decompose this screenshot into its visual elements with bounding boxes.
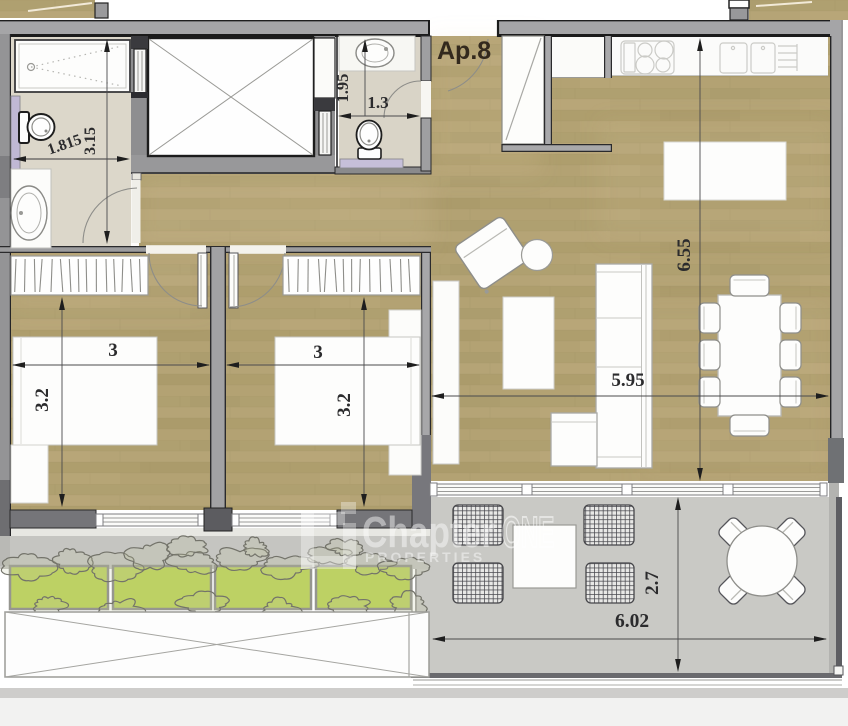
svg-text:ONE: ONE: [502, 507, 554, 557]
svg-text:Ap.8: Ap.8: [437, 37, 491, 65]
svg-text:3: 3: [108, 340, 118, 361]
svg-text:5.95: 5.95: [611, 370, 644, 391]
svg-text:2.7: 2.7: [642, 571, 663, 595]
svg-text:PROPERTIES: PROPERTIES: [365, 549, 485, 565]
svg-text:1.95: 1.95: [333, 74, 352, 103]
svg-text:3.15: 3.15: [82, 127, 99, 155]
svg-text:6.02: 6.02: [615, 611, 649, 632]
svg-text:1.3: 1.3: [367, 93, 388, 112]
svg-text:6.55: 6.55: [674, 238, 695, 271]
svg-text:3.2: 3.2: [334, 393, 355, 417]
svg-text:3.2: 3.2: [32, 388, 53, 412]
svg-text:3: 3: [313, 342, 323, 363]
